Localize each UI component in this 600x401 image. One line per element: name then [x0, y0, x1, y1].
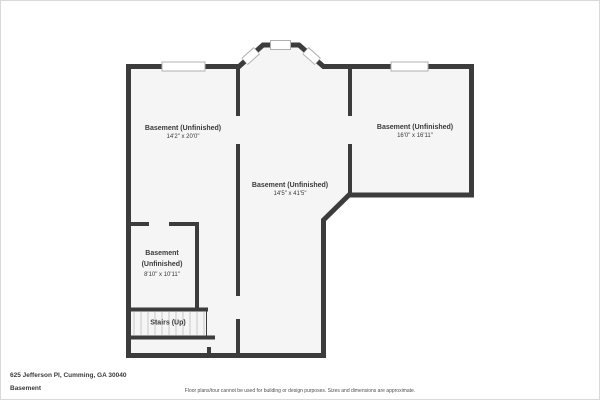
footer-disclaimer: Floor plans/tour cannot be used for buil…	[1, 388, 599, 394]
floor-plan-page: Basement (Unfinished) 14'2" x 20'0" Base…	[0, 0, 600, 400]
room-label-basement-right: Basement (Unfinished) 16'0" x 16'11"	[377, 123, 453, 141]
room-label-basement-center: Basement (Unfinished) 14'5" x 41'5"	[252, 181, 328, 199]
stairs-label: Stairs (Up)	[150, 320, 185, 327]
room-dimensions: 8'10" x 10'11"	[133, 271, 191, 279]
footer-address: 625 Jefferson Pl, Cumming, GA 30040	[10, 372, 126, 379]
room-name: Basement (Unfinished)	[252, 181, 328, 190]
room-label-basement-left: Basement (Unfinished) 14'2" x 20'0"	[145, 124, 221, 142]
room-dimensions: 14'5" x 41'5"	[252, 191, 328, 199]
room-name: Basement (Unfinished)	[377, 123, 453, 132]
window	[391, 62, 428, 71]
room-dimensions: 14'2" x 20'0"	[145, 134, 221, 142]
window	[162, 62, 205, 71]
window	[271, 41, 291, 50]
floor-plan-canvas	[1, 1, 600, 401]
room-name: Basement (Unfinished)	[133, 249, 191, 271]
room-name: Basement (Unfinished)	[145, 124, 221, 133]
room-label-basement-small: Basement (Unfinished) 8'10" x 10'11"	[133, 249, 191, 279]
room-dimensions: 16'0" x 16'11"	[377, 133, 453, 141]
